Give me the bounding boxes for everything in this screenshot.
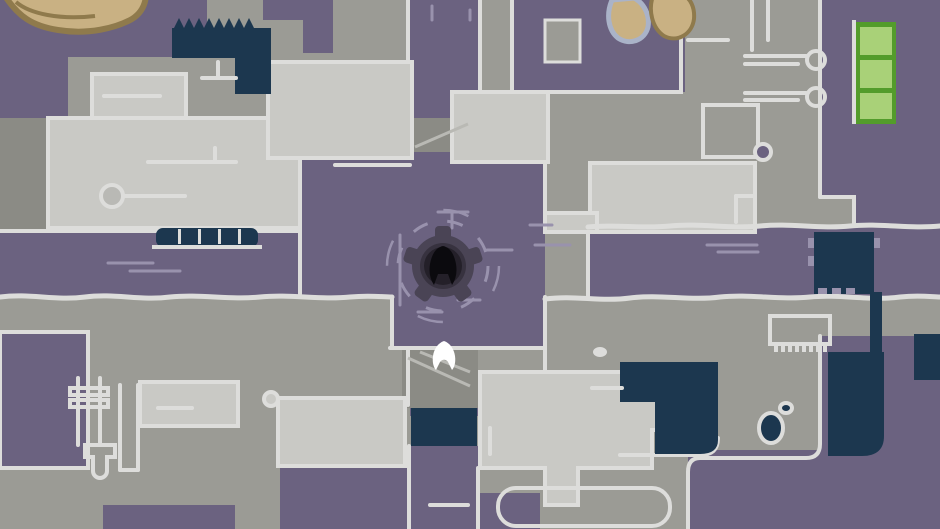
crate-3 bbox=[860, 93, 892, 119]
game-map-view[interactable] bbox=[0, 0, 940, 529]
bottom-pool-right bbox=[828, 352, 884, 456]
deposit-center-blue bbox=[609, 0, 649, 42]
crate-2 bbox=[860, 60, 892, 88]
ring-prop bbox=[264, 392, 278, 406]
crate-1 bbox=[860, 27, 892, 55]
shaft-pit bbox=[411, 408, 477, 446]
green-crates[interactable] bbox=[852, 20, 896, 124]
map-canvas bbox=[0, 0, 940, 529]
segmented-awning bbox=[152, 228, 262, 249]
port-hole bbox=[755, 144, 771, 160]
pebble bbox=[593, 347, 607, 357]
hole-large bbox=[759, 413, 783, 443]
edge-pool bbox=[914, 334, 940, 380]
deposit-center bbox=[651, 0, 694, 38]
hole-small bbox=[780, 403, 792, 413]
